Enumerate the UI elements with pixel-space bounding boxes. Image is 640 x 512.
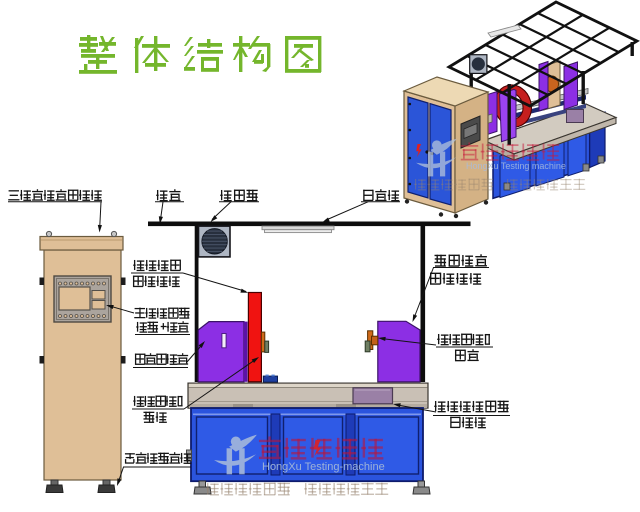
svg-text:HongXu Testing-machine: HongXu Testing-machine — [262, 461, 385, 473]
svg-text:HongXu Testing machine: HongXu Testing machine — [466, 161, 566, 171]
